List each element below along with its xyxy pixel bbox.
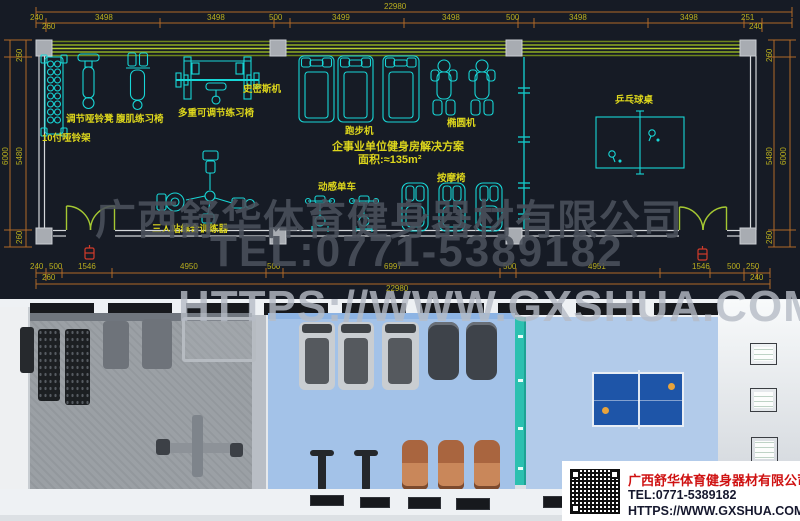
qr-marker — [571, 470, 580, 479]
card-company-name: 广西舒华体育健身器材有限公司 — [628, 470, 800, 489]
label-three-person-trainer: 三人站综合训练器 — [152, 225, 228, 235]
wall-poster-3 — [751, 437, 778, 463]
dim-total-top: 22980 — [384, 3, 406, 11]
label-spin-bike: 动感单车 — [318, 183, 356, 193]
floor-mat — [408, 497, 441, 509]
interior-partition-line — [518, 57, 530, 229]
massage-chair-3d-2 — [438, 440, 464, 490]
label-adjustable-bench: 调节哑铃凳 — [66, 115, 114, 125]
dim-top-0: 240 — [30, 14, 43, 22]
label-elliptical: 椭圆机 — [447, 119, 476, 129]
spin-bike-3d-1 — [318, 450, 326, 492]
ping-pong-table-3d — [592, 372, 684, 427]
dim-bot-5: 6997 — [384, 263, 402, 271]
dim-top-7: 3498 — [569, 14, 587, 22]
wall-poster-1 — [750, 343, 777, 365]
dim-bot-4: 500 — [267, 263, 280, 271]
dim-top-5: 3498 — [442, 14, 460, 22]
screenshot-root: 22980 240 3498 3498 500 3499 3498 500 34… — [0, 0, 800, 521]
double-door-left — [67, 206, 115, 230]
dim-left-bottom: 260 — [16, 231, 24, 244]
plan-treadmills — [299, 56, 419, 122]
dim-top-sub-left: 260 — [42, 23, 55, 31]
dim-left-outer: 6000 — [2, 147, 10, 165]
massage-chair-3d-1 — [402, 440, 428, 490]
dim-bot-3: 4950 — [180, 263, 198, 271]
treadmill-belt — [305, 338, 329, 384]
dumbbell-rack-3d-1 — [38, 329, 60, 401]
card-website: HTTPS://WWW.GXSHUA.COM — [628, 504, 800, 518]
dim-bot-1: 500 — [49, 263, 62, 271]
treadmill-belt — [344, 338, 368, 384]
dim-bot-2: 1546 — [78, 263, 96, 271]
dim-top-1: 3498 — [95, 14, 113, 22]
trainer-3d-stack-left — [156, 439, 170, 455]
dim-bot-10: 250 — [746, 263, 759, 271]
dim-bot-sub-right: 240 — [750, 274, 763, 282]
partition-marker — [518, 335, 523, 338]
partition-marker — [518, 467, 523, 470]
plan-ellipticals — [431, 60, 495, 115]
label-massage-chair: 按摩椅 — [437, 174, 466, 184]
spin-bike-3d-1-handlebar — [310, 450, 334, 456]
label-treadmill: 跑步机 — [345, 127, 374, 137]
render-3d-view: 广西舒华体育健身器材有限公司 TEL:0771-5389182 HTTPS://… — [0, 293, 800, 521]
treadmill-belt — [388, 338, 412, 384]
dim-bot-7: 4951 — [588, 263, 606, 271]
qr-marker — [610, 470, 619, 479]
dim-top-8: 3498 — [680, 14, 698, 22]
teal-partition-wall — [515, 317, 526, 485]
plan-adjustable-bench — [78, 54, 99, 109]
plan-dumbbell-rack — [41, 55, 67, 136]
spin-bike-3d-2-handlebar — [354, 450, 378, 456]
dumbbell-rack-3d-2 — [65, 329, 90, 405]
qr-code — [570, 469, 620, 514]
dim-left-top: 260 — [16, 49, 24, 62]
treadmill-console — [341, 324, 371, 333]
smith-machine-3d — [182, 317, 256, 362]
dim-top-3: 500 — [269, 14, 282, 22]
dim-right-top: 260 — [766, 49, 774, 62]
floor-mat — [456, 498, 490, 510]
treadmill-3d-3 — [382, 322, 419, 390]
double-door-right — [680, 207, 727, 230]
label-ab-chair: 腹肌练习椅 — [116, 115, 164, 125]
trainer-3d-stack-right — [230, 443, 243, 457]
elliptical-3d-2 — [466, 322, 497, 380]
spin-bike-3d-2 — [362, 450, 370, 492]
partition-marker — [518, 379, 523, 382]
partition-marker — [518, 427, 523, 430]
massage-chair-3d-3 — [474, 440, 500, 490]
wall-poster-2 — [750, 388, 777, 412]
floor-mat — [360, 497, 390, 508]
exercise-machine-3d — [142, 319, 172, 369]
card-telephone: TEL:0771-5389182 — [628, 488, 736, 502]
elliptical-3d-1 — [428, 322, 459, 380]
dim-top-sub-right: 240 — [749, 23, 762, 31]
plan-spin-bikes — [306, 196, 379, 232]
dim-bot-sub-left: 260 — [42, 274, 55, 282]
dim-top-4: 3499 — [332, 14, 350, 22]
bench-3d — [103, 321, 129, 369]
label-smith-machine: 史密斯机 — [243, 85, 281, 95]
plan-ping-pong-table — [596, 111, 684, 174]
dim-top-6: 500 — [506, 14, 519, 22]
contact-card: 广西舒华体育健身器材有限公司 TEL:0771-5389182 HTTPS://… — [562, 461, 800, 521]
treadmill-console — [385, 324, 416, 333]
dim-total-bottom: 22980 — [386, 285, 408, 293]
dim-top-2: 3498 — [207, 14, 225, 22]
paddle-icon — [602, 407, 609, 414]
treadmill-3d-2 — [338, 322, 374, 390]
plan-smith-machine — [176, 57, 259, 104]
label-dumbbell-rack: 10付哑铃架 — [42, 134, 91, 144]
dim-top-9: 251 — [741, 14, 754, 22]
label-ping-pong-table: 乒乓球桌 — [615, 96, 653, 106]
treadmill-3d-1 — [299, 322, 335, 390]
floor-mat — [310, 495, 344, 506]
solution-title: 企事业单位健身房解决方案 — [332, 141, 464, 155]
plan-massage-chairs — [402, 183, 502, 231]
dim-right-bottom: 260 — [766, 231, 774, 244]
cad-floor-plan: 22980 240 3498 3498 500 3499 3498 500 34… — [0, 0, 800, 293]
qr-marker — [571, 504, 580, 513]
wall-weight-rack-3d — [20, 327, 34, 373]
trainer-3d-column — [192, 415, 203, 477]
dim-bot-0: 240 — [30, 263, 43, 271]
dim-left-inner: 5480 — [16, 147, 24, 165]
plan-ab-chair — [126, 53, 150, 110]
dim-bot-6: 500 — [503, 263, 516, 271]
treadmill-console — [302, 324, 332, 333]
solution-area: 面积:≈135m² — [358, 154, 422, 168]
dim-bot-8: 1546 — [692, 263, 710, 271]
dim-right-inner: 5480 — [766, 147, 774, 165]
paddle-icon — [668, 383, 675, 390]
plan-three-person-trainer — [157, 151, 255, 223]
dim-bot-9: 500 — [727, 263, 740, 271]
table-mid-line — [594, 400, 682, 401]
label-multi-adjustable-chair: 多重可调节练习椅 — [178, 109, 254, 119]
dim-right-outer: 6000 — [780, 147, 788, 165]
exit-marker-icon — [85, 245, 707, 260]
